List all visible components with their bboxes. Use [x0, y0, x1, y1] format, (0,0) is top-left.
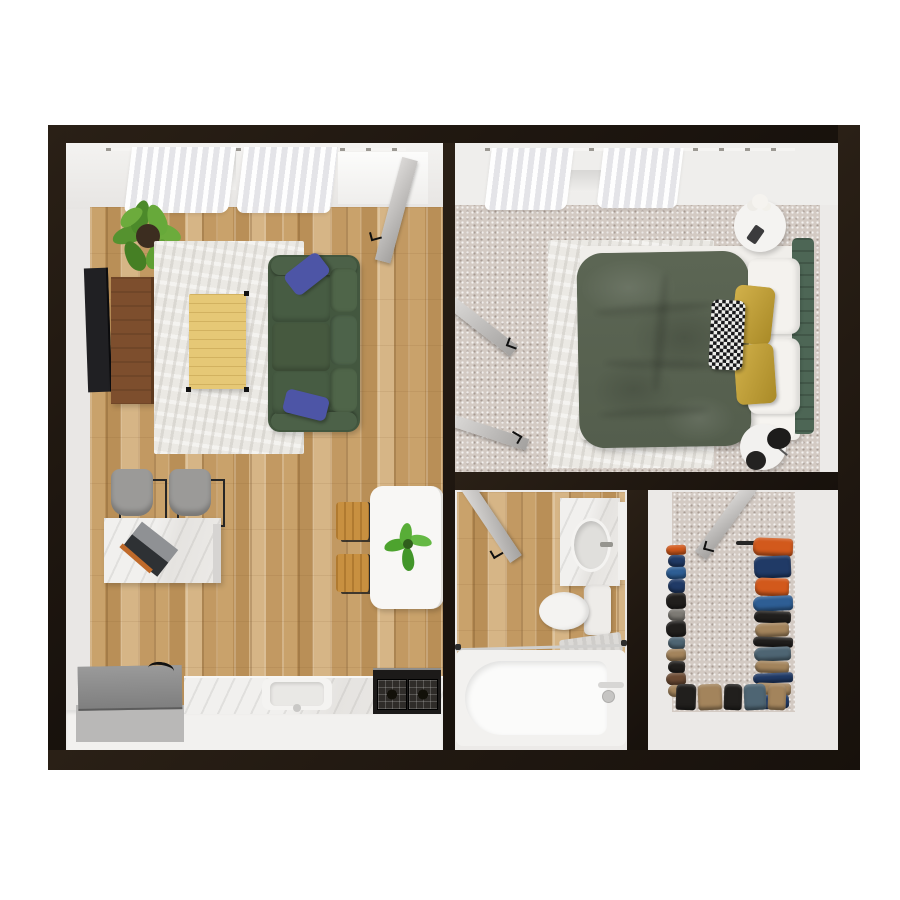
hanging-garment — [666, 593, 687, 610]
sofa-seat-cushion — [272, 323, 330, 371]
hanging-garment — [668, 555, 685, 568]
clothes-rail-bottom — [676, 684, 788, 712]
tub-faucet — [598, 682, 624, 688]
duvet-crease — [604, 359, 722, 370]
hanging-garment — [697, 683, 722, 710]
bathroom — [455, 490, 627, 750]
hanging-garment — [668, 579, 685, 594]
plant-center — [403, 539, 413, 549]
hanging-garment — [666, 649, 687, 662]
outer-wall-top — [48, 125, 860, 143]
speaker — [746, 451, 766, 470]
plant-leaf — [401, 546, 415, 571]
island-plant — [380, 521, 436, 573]
hanging-garment — [753, 595, 794, 612]
table-leg — [244, 291, 249, 296]
vanity-faucet — [600, 542, 613, 547]
hanging-garment — [666, 567, 687, 580]
curtain-right — [236, 147, 338, 213]
hanging-garment — [755, 577, 790, 596]
stove-burner — [408, 679, 438, 710]
flowers — [752, 194, 768, 209]
bedroom — [455, 143, 838, 472]
vanity — [560, 498, 620, 586]
duvet-crease — [599, 405, 709, 419]
table-leg — [186, 387, 191, 392]
washer — [76, 666, 184, 742]
rod-end — [455, 644, 461, 650]
clothes-rail-left — [666, 545, 688, 697]
hanging-garment — [668, 637, 685, 650]
stove-burner — [377, 679, 407, 710]
sofa — [268, 255, 360, 432]
stove — [373, 668, 441, 714]
wall-face-right — [820, 205, 838, 472]
kitchen-sink — [262, 678, 332, 710]
outer-wall-left — [48, 125, 66, 770]
laptop — [120, 522, 178, 579]
hanging-garment — [768, 684, 787, 711]
table-leg — [244, 387, 249, 392]
floor-plan-render — [0, 0, 900, 900]
outer-wall-bottom — [48, 750, 860, 770]
toilet-bowl — [539, 592, 589, 630]
hanging-garment — [668, 609, 685, 622]
phone — [746, 224, 765, 244]
hanging-garment — [668, 661, 685, 674]
bar-stool — [336, 502, 371, 540]
tv — [84, 268, 112, 393]
bathtub — [456, 650, 626, 746]
hanging-garment — [743, 684, 766, 711]
sink-faucet — [293, 704, 301, 712]
bar-stool — [336, 554, 371, 592]
bed — [575, 236, 820, 448]
outer-wall-right — [838, 125, 860, 770]
hanging-garment — [666, 545, 686, 556]
hanging-garment — [666, 621, 687, 638]
living-room — [66, 143, 443, 750]
desk-edge — [213, 524, 221, 583]
tub-drain-knob — [602, 690, 615, 703]
vanity-side-panel — [618, 502, 627, 580]
hanging-garment — [724, 684, 743, 711]
bathtub-basin — [465, 661, 607, 735]
hanging-garment — [753, 537, 794, 556]
closet — [648, 490, 838, 750]
sofa-back-cushion — [330, 368, 357, 412]
pillow-houndstooth — [708, 299, 746, 371]
sofa-back-cushion — [330, 315, 357, 365]
desk-chair — [111, 469, 153, 516]
round-nightstand — [734, 200, 786, 252]
coffee-table — [189, 294, 246, 389]
duvet-crease — [650, 272, 670, 392]
duvet-crease — [595, 300, 715, 317]
hanging-garment — [755, 622, 790, 637]
toilet — [539, 590, 613, 640]
curtain-right — [596, 148, 683, 208]
hanging-garment — [754, 555, 792, 579]
wall-bathroom-closet — [627, 490, 648, 750]
sink-basin — [270, 682, 324, 706]
desk — [104, 518, 221, 583]
sofa-back-cushion — [330, 268, 357, 312]
hanging-garment — [676, 684, 697, 711]
desk-chair — [169, 469, 211, 516]
wall-living-bedroom — [443, 143, 455, 750]
wall-bedroom-bathroom — [455, 472, 838, 490]
curtain-left — [484, 148, 574, 210]
tv-console — [111, 277, 157, 404]
hanging-garment — [754, 646, 792, 662]
